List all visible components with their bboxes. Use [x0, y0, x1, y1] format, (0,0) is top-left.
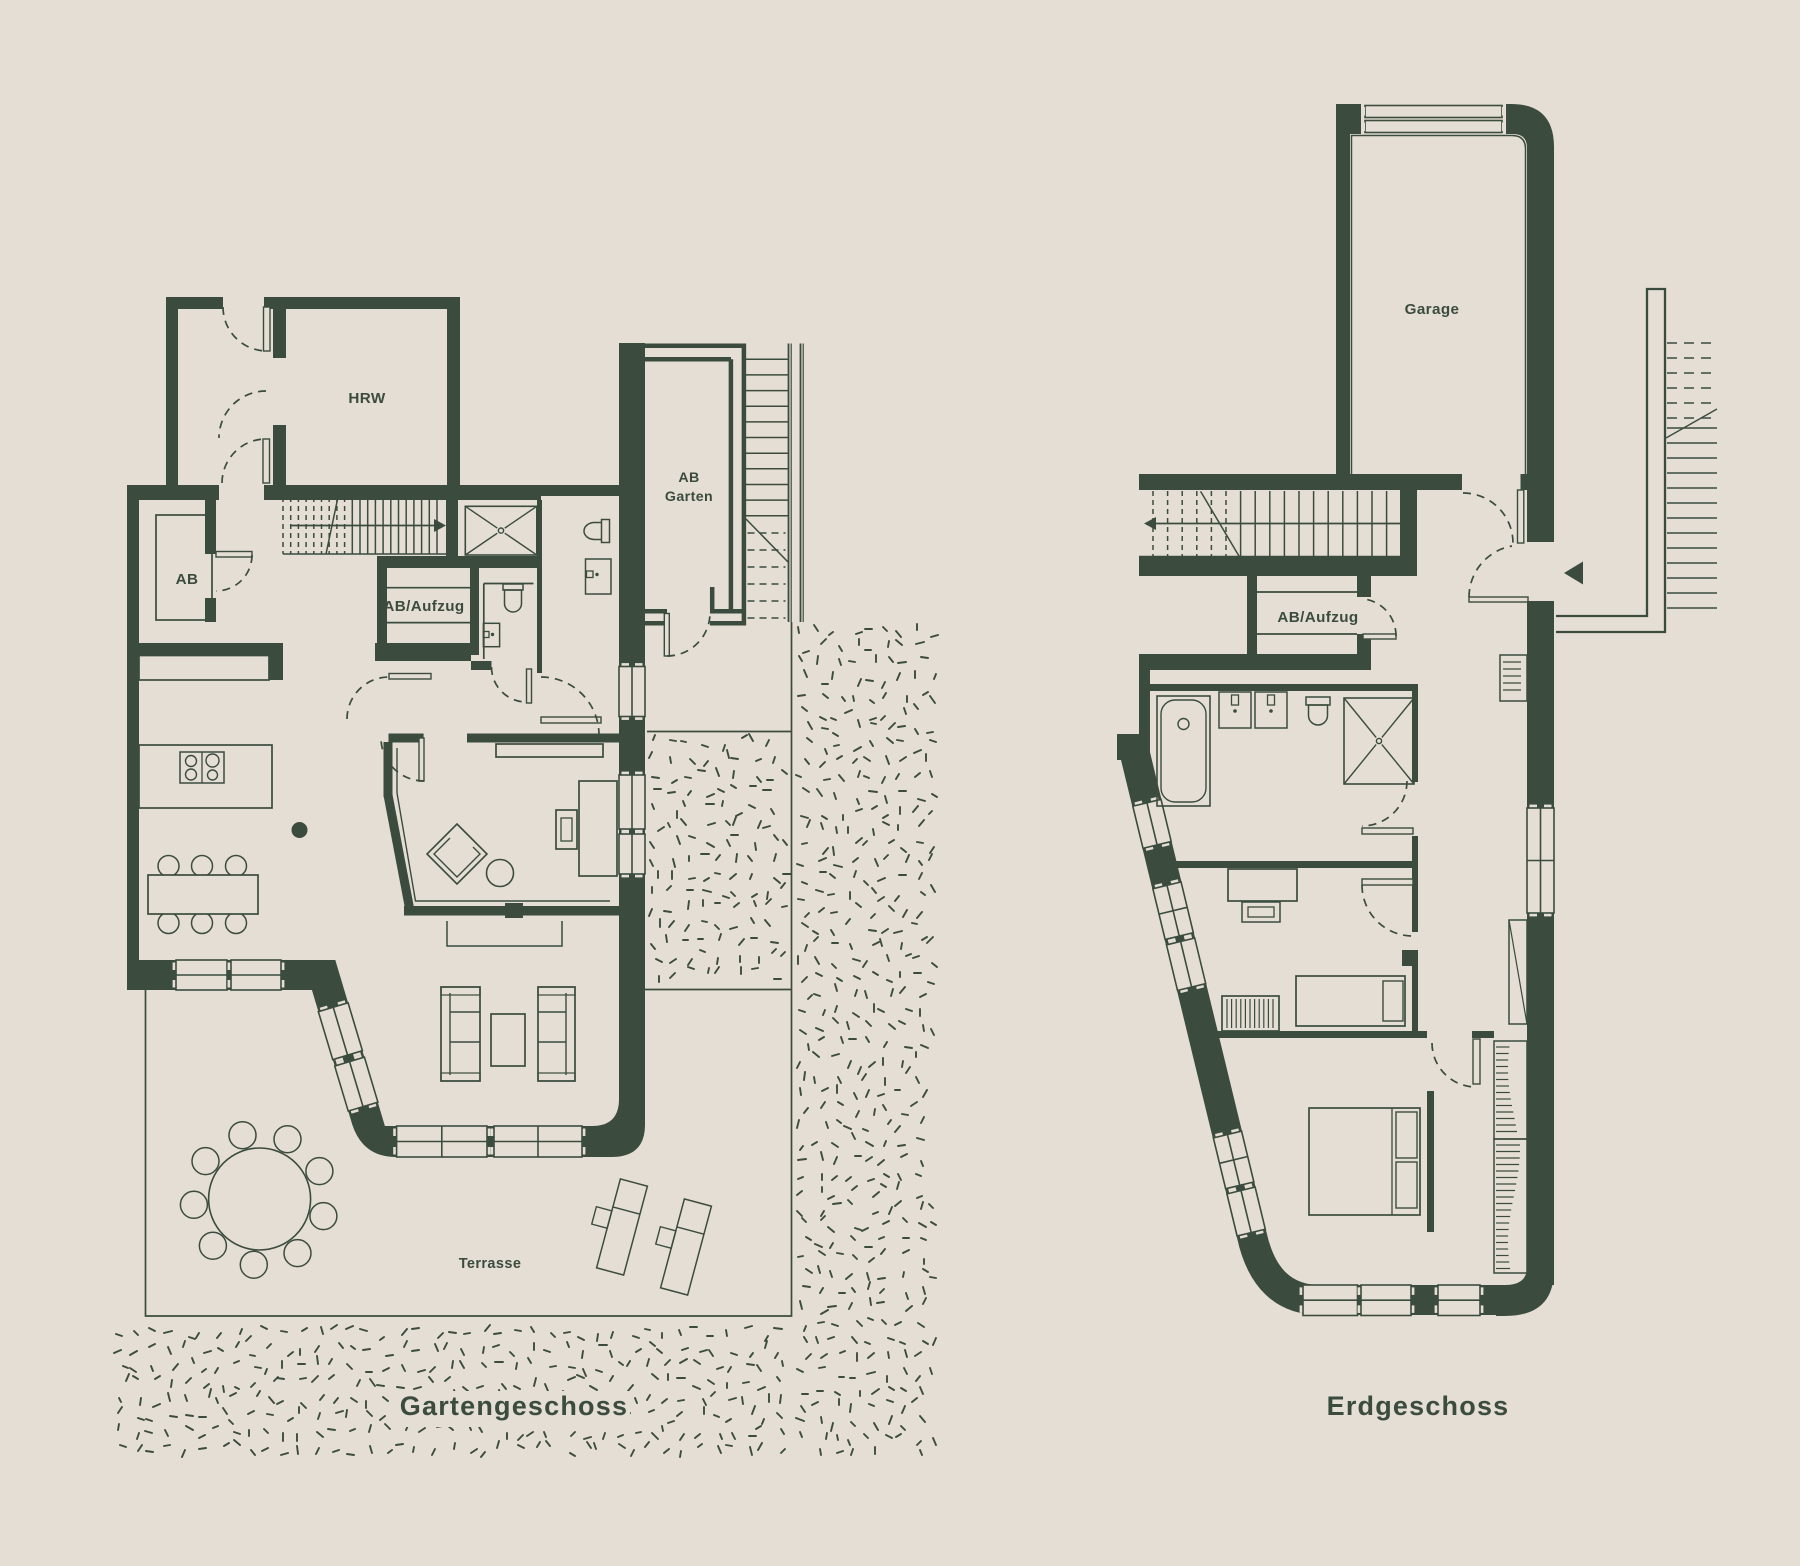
svg-text:AB: AB — [176, 571, 199, 588]
svg-text:AB/Aufzug: AB/Aufzug — [383, 598, 464, 615]
svg-text:Gartengeschoss: Gartengeschoss — [400, 1391, 628, 1421]
svg-text:Terrasse: Terrasse — [459, 1256, 522, 1272]
svg-text:Garten: Garten — [665, 489, 713, 505]
svg-text:HRW: HRW — [348, 390, 385, 407]
svg-text:AB: AB — [678, 470, 699, 486]
svg-text:Erdgeschoss: Erdgeschoss — [1327, 1391, 1510, 1421]
svg-text:AB/Aufzug: AB/Aufzug — [1277, 609, 1358, 626]
svg-text:Garage: Garage — [1405, 301, 1460, 318]
